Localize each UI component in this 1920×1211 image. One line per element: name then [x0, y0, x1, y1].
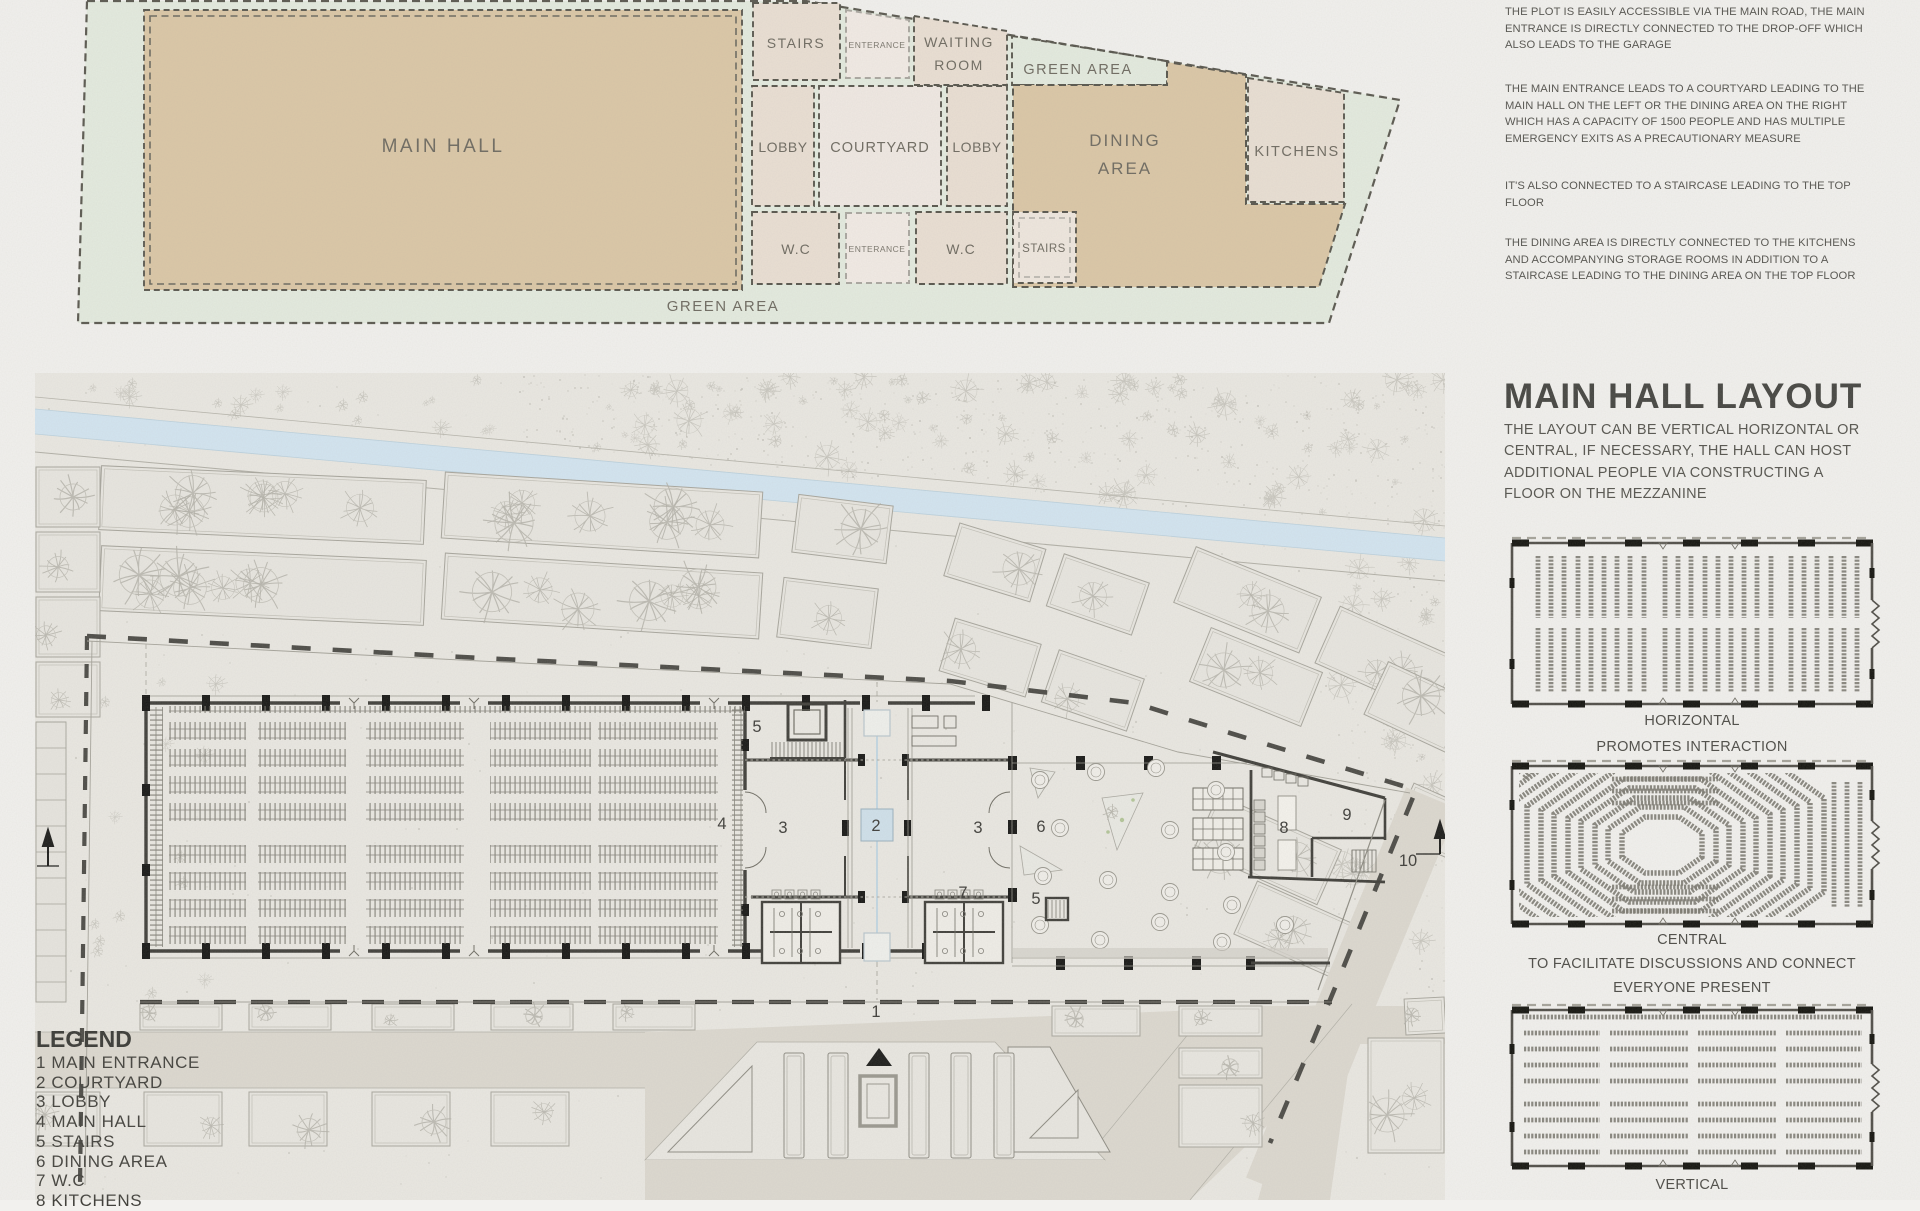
svg-text:MAIN HALL: MAIN HALL: [382, 136, 505, 157]
svg-text:2: 2: [871, 817, 880, 835]
svg-text:ENTERANCE: ENTERANCE: [849, 40, 906, 50]
svg-text:5: 5: [752, 718, 761, 736]
svg-text:STAIRS: STAIRS: [1022, 243, 1066, 255]
svg-text:5: 5: [1031, 890, 1040, 908]
svg-text:10: 10: [1399, 852, 1417, 870]
svg-text:7: 7: [958, 884, 967, 902]
svg-text:W.C: W.C: [946, 241, 975, 257]
svg-text:W.C: W.C: [781, 241, 810, 257]
svg-text:GREEN AREA: GREEN AREA: [1023, 62, 1132, 78]
svg-text:ENTERANCE: ENTERANCE: [849, 244, 906, 254]
svg-text:STAIRS: STAIRS: [767, 35, 826, 51]
svg-text:3: 3: [973, 819, 982, 837]
svg-text:3: 3: [778, 819, 787, 837]
svg-text:6: 6: [1036, 818, 1045, 836]
svg-text:KITCHENS: KITCHENS: [1254, 144, 1339, 160]
svg-text:LOBBY: LOBBY: [952, 139, 1001, 155]
svg-text:8: 8: [1279, 819, 1288, 837]
svg-text:1: 1: [871, 1003, 880, 1021]
svg-text:GREEN AREA: GREEN AREA: [667, 298, 780, 315]
svg-text:DINING: DINING: [1089, 131, 1161, 150]
svg-text:ROOM: ROOM: [934, 57, 984, 73]
svg-text:LOBBY: LOBBY: [758, 139, 807, 155]
svg-text:9: 9: [1342, 806, 1351, 824]
svg-text:WAITING: WAITING: [924, 34, 994, 50]
svg-text:AREA: AREA: [1098, 159, 1152, 178]
svg-text:COURTYARD: COURTYARD: [830, 140, 930, 156]
svg-text:4: 4: [717, 815, 726, 833]
